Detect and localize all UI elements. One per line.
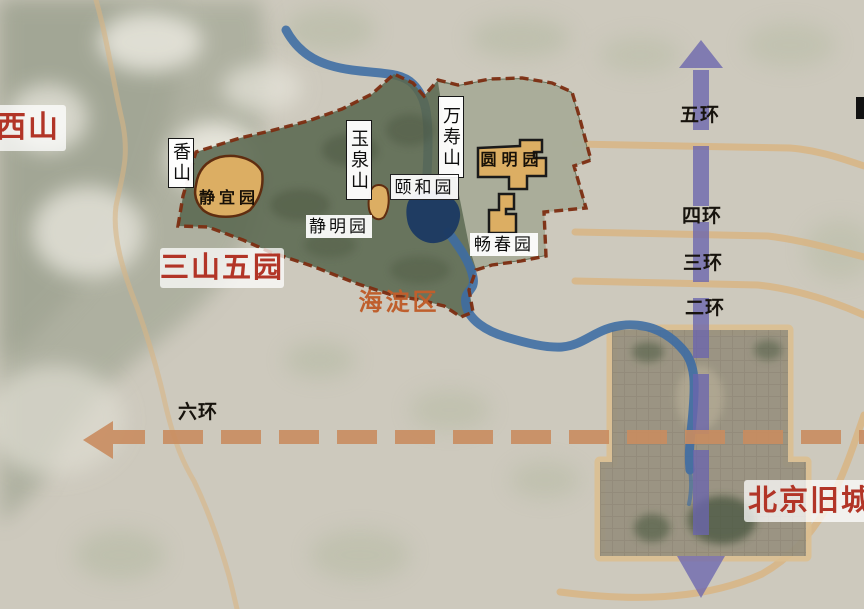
ring2-label: 二环 [675,296,735,320]
jingyiyuan-label: 静宜园 [193,190,265,208]
changchunyuan-label: 畅春园 [470,233,538,256]
jingmingyuan-label: 静明园 [306,215,372,238]
yiheyuan-label: 颐和园 [390,174,459,200]
beijing-sanshanwuyuan-map: 西山 三山五园 北京旧城 海淀区 香山 玉泉山 万寿山 颐和园 静明园 畅春园 … [0,0,864,609]
xiangshan-label: 香山 [168,138,194,188]
wanshoushan-label: 万寿山 [438,96,464,178]
ring5-label: 五环 [670,103,730,127]
xishan-label: 西山 [0,105,66,151]
yuquanshan-label: 玉泉山 [346,120,372,200]
yuanmingyuan-label: 圆明园 [480,152,544,170]
ring6-label: 六环 [168,400,228,424]
sanshanwuyuan-label: 三山五园 [160,248,284,288]
cutoff-label-fragment [856,97,864,119]
ring3-label: 三环 [673,251,733,275]
haidian-district-label: 海淀区 [356,290,442,316]
beijing-old-city-label: 北京旧城 [744,480,864,522]
ring4-label: 四环 [672,204,732,228]
